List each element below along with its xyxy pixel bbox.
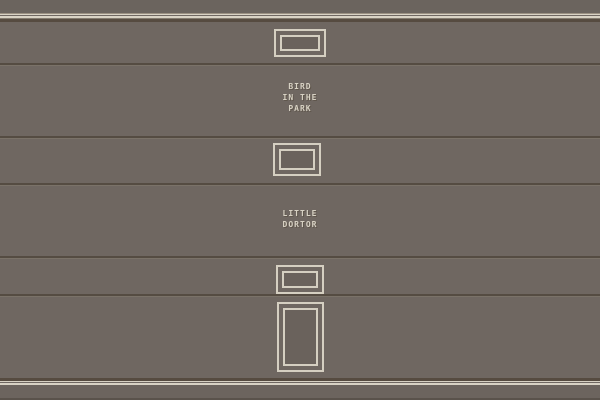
panel-seam — [0, 136, 600, 139]
sign-bird-in-the-park: BIRD IN THE PARK — [0, 81, 600, 114]
sign-line: IN THE — [0, 92, 600, 103]
sign-line: DORTOR — [0, 219, 600, 230]
plinth-band — [0, 385, 600, 400]
panel-seam — [0, 256, 600, 259]
window-frame-top — [274, 29, 326, 57]
attic-wall-band — [0, 0, 600, 13]
window-pane — [279, 149, 315, 170]
window-frame-lower — [276, 265, 324, 294]
window-pane — [280, 35, 320, 51]
sign-line: LITTLE — [0, 208, 600, 219]
panel-seam — [0, 294, 600, 297]
cornice-molding — [0, 13, 600, 22]
sign-line: PARK — [0, 103, 600, 114]
sign-little-dortor: LITTLE DORTOR — [0, 208, 600, 230]
panel-seam — [0, 63, 600, 66]
panel-seam — [0, 183, 600, 186]
base-molding — [0, 378, 600, 385]
window-frame-middle — [273, 143, 321, 176]
door[interactable] — [277, 302, 324, 372]
door-panel — [283, 308, 318, 366]
building-facade: BIRD IN THE PARK LITTLE DORTOR — [0, 0, 600, 400]
sign-line: BIRD — [0, 81, 600, 92]
window-pane — [282, 271, 318, 288]
